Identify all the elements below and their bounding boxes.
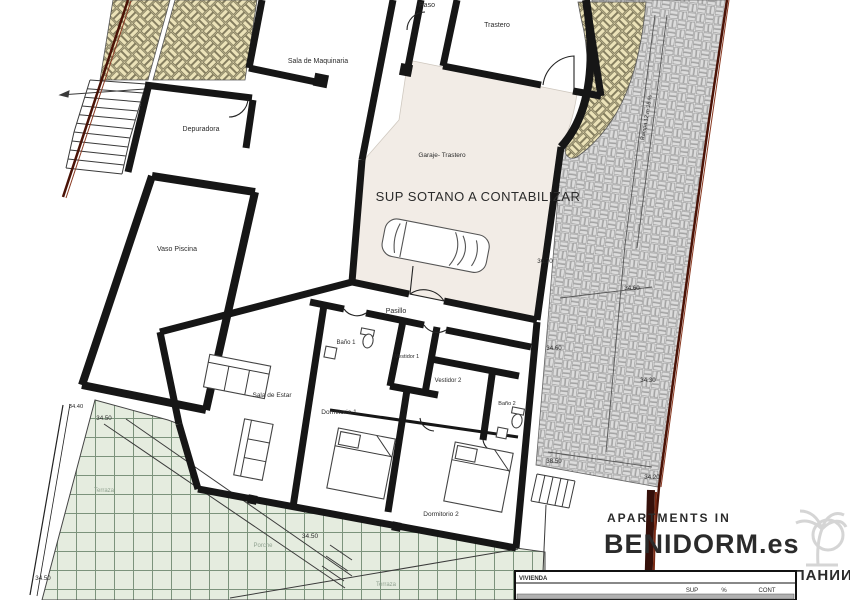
label-porche: Porche — [253, 543, 273, 549]
floor-plan: APARTMENTS IN BENIDORM.es НЕДВИЖИМОСТЬ В… — [0, 0, 850, 600]
label-dormitorio-1: Dormitorio 1 — [321, 409, 357, 416]
label-dormitorio-2: Dormitorio 2 — [423, 511, 459, 518]
label-sala-de-estar: Sala de Estar — [252, 392, 292, 399]
label-garaje-trastero: Garaje- Trastero — [418, 152, 466, 159]
label-bano-1: Baño 1 — [336, 340, 356, 346]
label-terraza-lower: Terraza — [376, 582, 397, 588]
bed-2 — [444, 442, 513, 512]
dim-36-70: 36.70 — [537, 258, 553, 265]
summary-table: VIVIENDA SUP % CONT — [515, 571, 796, 600]
label-vaso-piscina: Vaso Piscina — [157, 246, 197, 253]
table-grey-row — [517, 594, 794, 599]
label-paso: Paso — [419, 2, 435, 9]
bed-1 — [327, 428, 396, 499]
watermark-line1: APARTMENTS IN — [607, 511, 731, 525]
label-vestidor-2: Vestidor 2 — [435, 378, 462, 384]
table-col-sup: SUP — [686, 588, 698, 594]
dim-34-50-b: 34.50 — [302, 533, 319, 540]
table-title: VIVIENDA — [519, 576, 548, 582]
dim-34-60-a: 34.60 — [624, 285, 640, 292]
dim-38-50: 38.50 — [546, 458, 562, 465]
label-depuradora: Depuradora — [183, 126, 220, 133]
watermark-line2: BENIDORM.es — [604, 529, 800, 559]
label-trastero: Trastero — [484, 22, 510, 29]
dim-34-60-b: 34.60 — [546, 345, 562, 352]
table-col-pct: % — [721, 588, 727, 594]
label-sup-sotano: SUP SOTANO A CONTABILIZAR — [376, 189, 581, 204]
label-bano-2: Baño 2 — [498, 401, 515, 407]
label-sala-maquinaria: Sala de Maquinaria — [288, 58, 348, 65]
dim-34-50-a: 34.50 — [96, 415, 112, 422]
label-vestidor-1: Vestidor 1 — [395, 354, 419, 360]
label-pasillo: Pasillo — [386, 308, 407, 315]
table-col-cont: CONT — [759, 588, 776, 594]
dim-34-20: 34.20 — [644, 474, 660, 481]
dim-34-30: 34.30 — [640, 377, 656, 384]
dim-34-50-c: 34.50 — [35, 575, 51, 582]
dim-34-40: 34.40 — [69, 404, 84, 410]
label-terraza-upper: Terraza — [94, 488, 115, 494]
